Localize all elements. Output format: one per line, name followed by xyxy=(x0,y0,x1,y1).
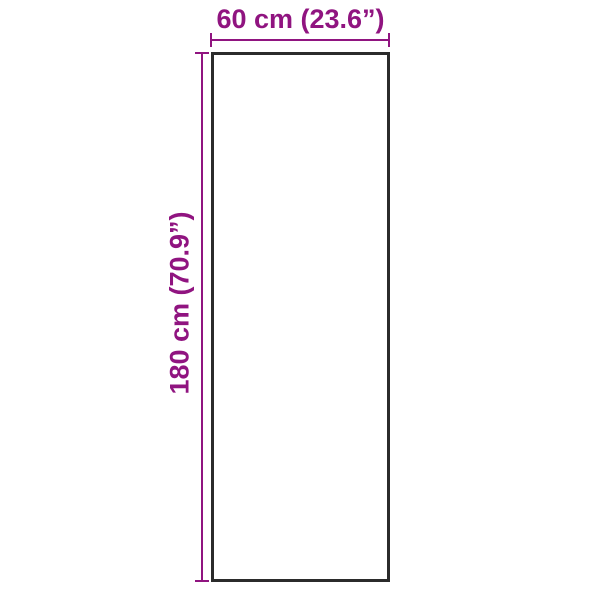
product-outline-rect xyxy=(211,52,390,582)
width-dimension-tick-left xyxy=(210,33,212,47)
width-dimension-line xyxy=(211,39,390,41)
width-dimension-label: 60 cm (23.6”) xyxy=(211,6,390,33)
height-dimension-label: 180 cm (70.9”) xyxy=(167,211,194,394)
dimension-diagram: 60 cm (23.6”) 180 cm (70.9”) xyxy=(0,0,600,600)
height-dimension-line xyxy=(201,52,203,582)
width-dimension-tick-right xyxy=(388,33,390,47)
height-dimension-tick-top xyxy=(195,52,209,54)
height-dimension-tick-bottom xyxy=(195,580,209,582)
